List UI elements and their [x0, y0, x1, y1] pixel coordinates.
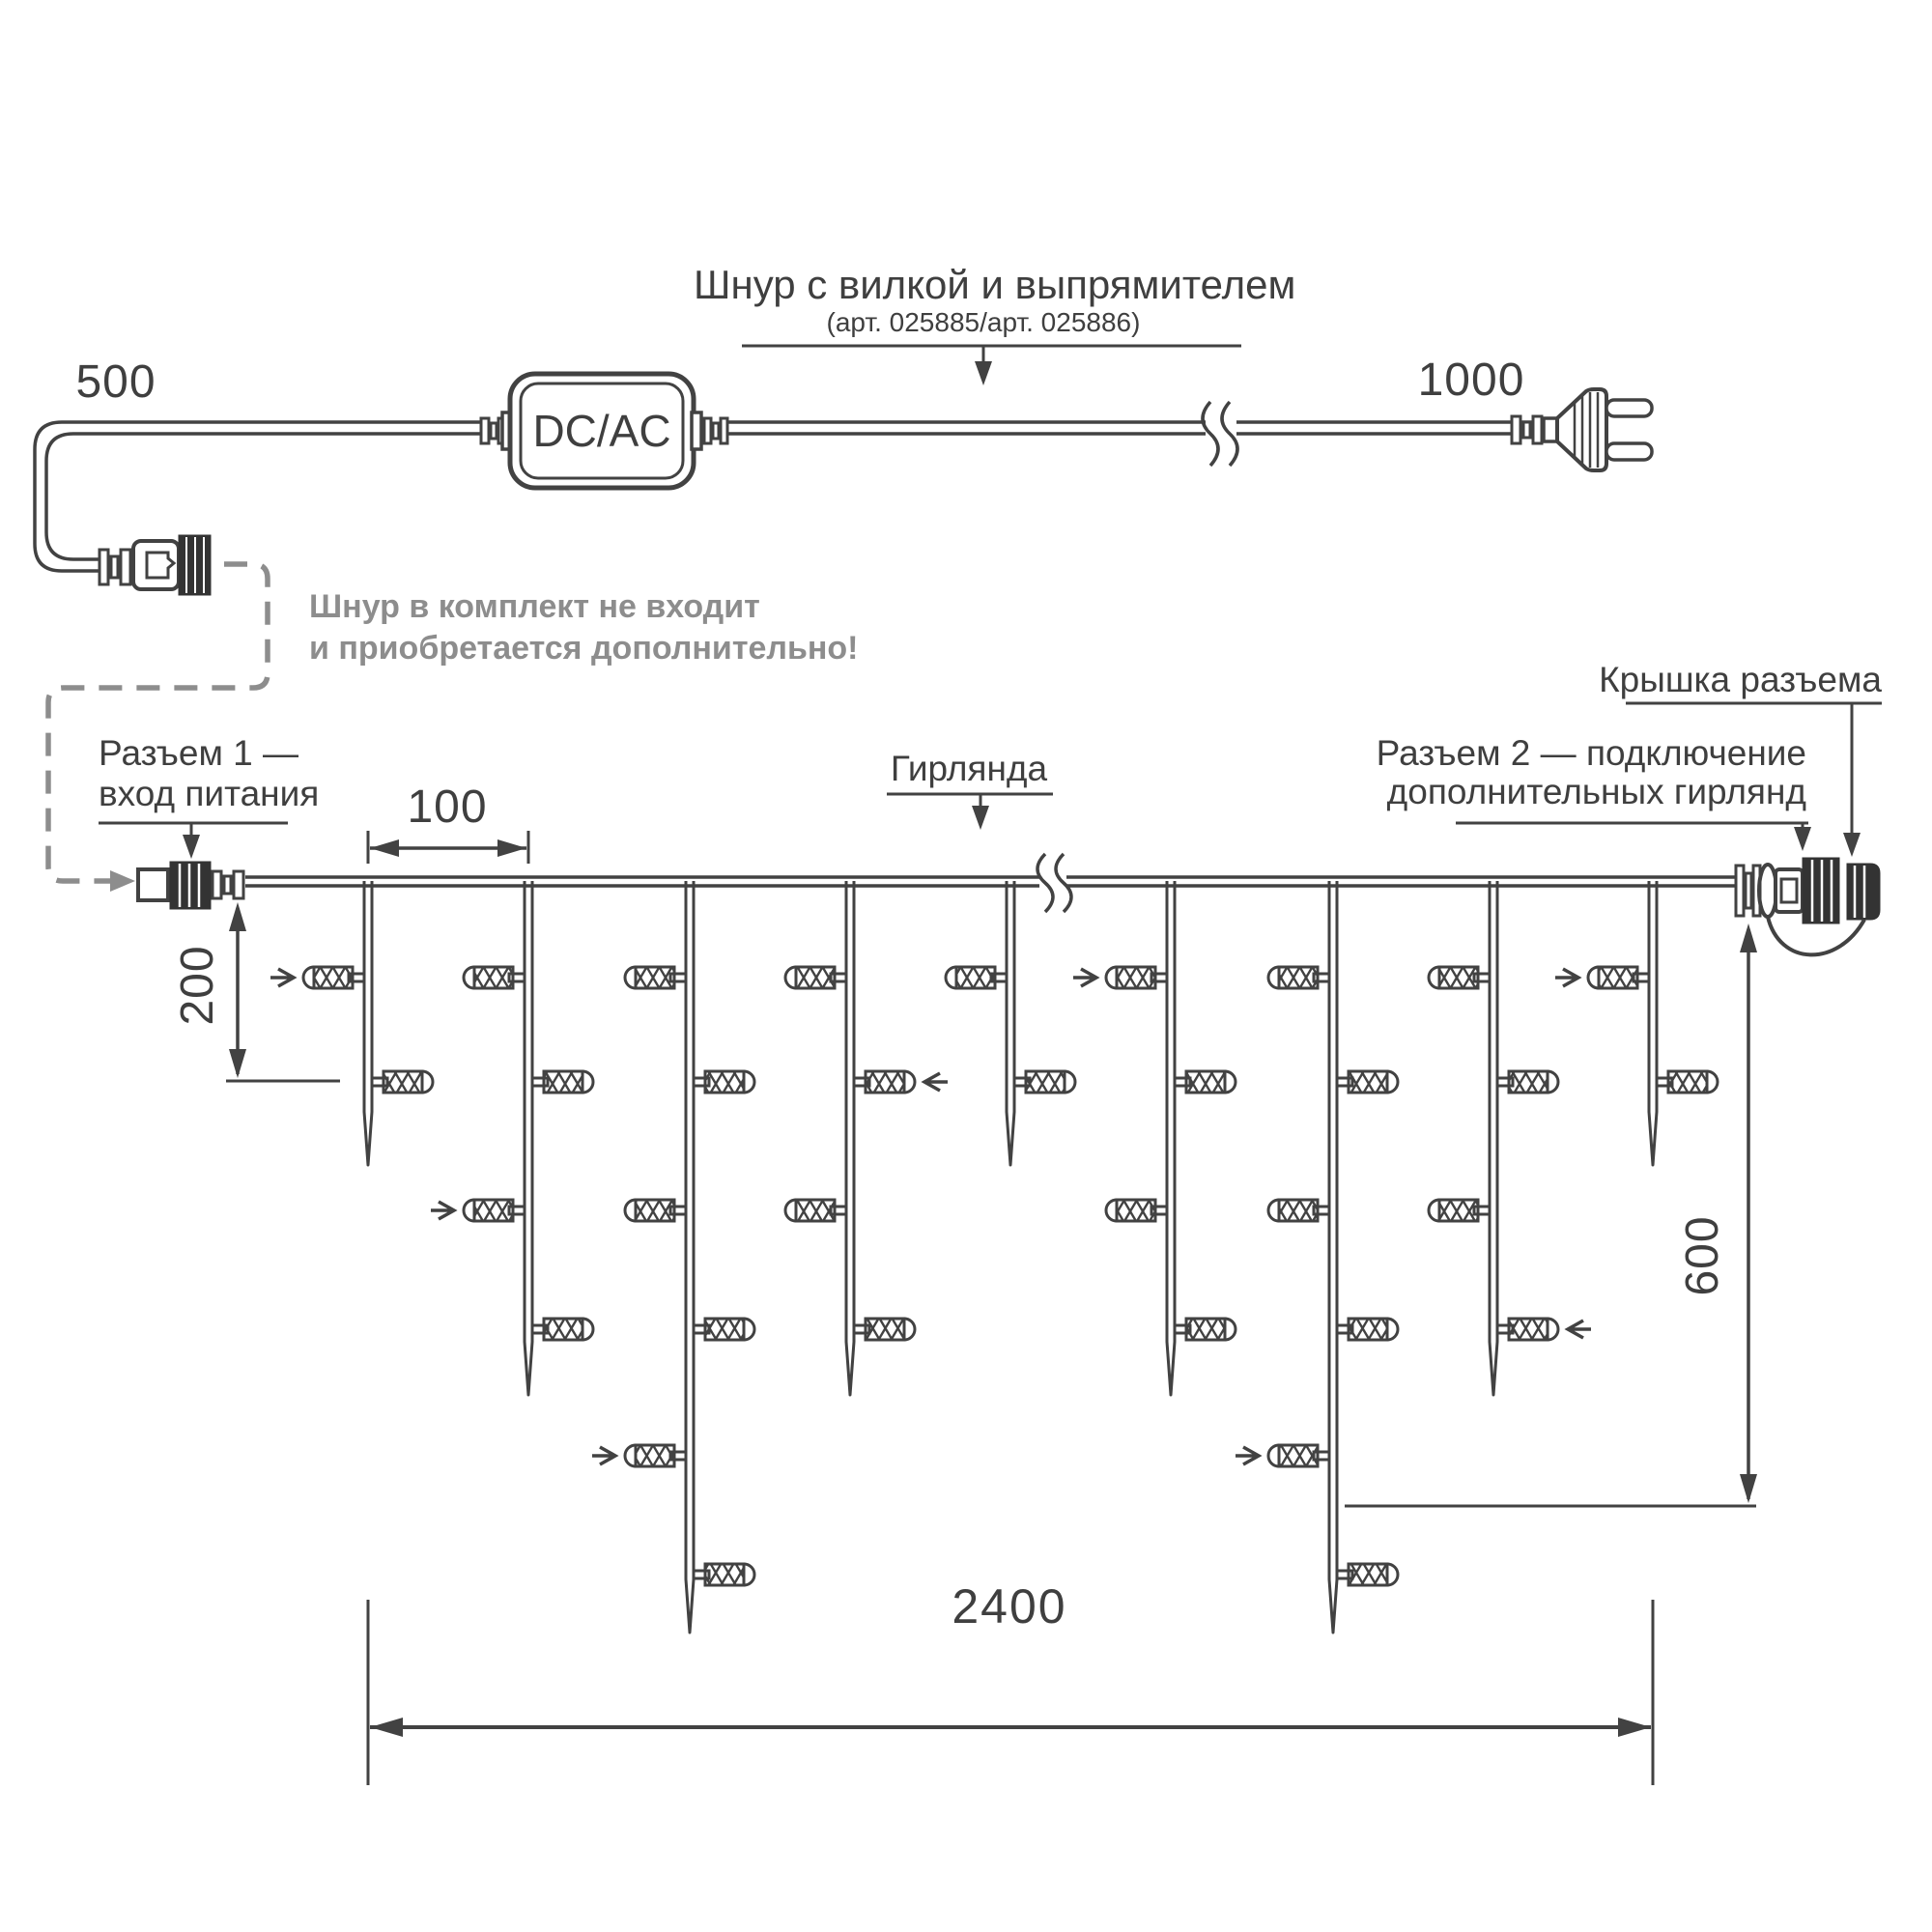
garland-drops-layer [270, 881, 1718, 1633]
dim-100-graphic [368, 831, 528, 864]
cord-connector-icon [99, 535, 211, 595]
garland-drop [1236, 881, 1398, 1633]
connector2-label-line2: дополнительных гирлянд [1323, 774, 1806, 810]
led-bulb-icon [1268, 1200, 1329, 1221]
note-line2: и приобретается дополнительно! [309, 632, 859, 665]
garland-label: Гирлянда [872, 751, 1065, 786]
dim-height-label: 600 [1680, 1179, 1726, 1333]
flash-marker-icon [1568, 1321, 1591, 1338]
diagram-subtitle: (арт. 025885/арт. 025886) [742, 309, 1225, 336]
led-bulb-icon [625, 1445, 686, 1466]
flash-marker-icon [1555, 969, 1578, 986]
flash-marker-icon [270, 969, 294, 986]
connector2-icon [1736, 858, 1880, 954]
cord-break-icon [1203, 402, 1237, 466]
led-bulb-icon [785, 967, 846, 988]
power-cord [35, 402, 1545, 571]
led-bulb-icon [1175, 1319, 1236, 1340]
dashed-connection-path [48, 564, 268, 892]
garland-drop [1073, 881, 1236, 1395]
led-bulb-icon [532, 1071, 593, 1093]
connector2-pointer [1456, 823, 1811, 851]
garland-drop [270, 881, 433, 1165]
led-bulb-icon [785, 1200, 846, 1221]
connector1-label-line1: Разъем 1 — [99, 735, 298, 771]
connector1-icon [138, 862, 243, 909]
led-bulb-icon [1268, 967, 1329, 988]
flash-marker-icon [592, 1447, 615, 1464]
dim-200-graphic [226, 902, 340, 1081]
flash-marker-icon [1073, 969, 1096, 986]
connector2-label-line1: Разъем 2 — подключение [1323, 735, 1806, 771]
led-bulb-icon [1337, 1319, 1398, 1340]
garland-drop [592, 881, 754, 1633]
led-bulb-icon [694, 1071, 754, 1093]
led-bulb-icon [625, 967, 686, 988]
led-bulb-icon [946, 967, 1007, 988]
diagram-title: Шнур с вилкой и выпрямителем [694, 265, 1273, 305]
led-bulb-icon [303, 967, 364, 988]
cap-label: Крышка разъема [1592, 662, 1882, 697]
led-bulb-icon [372, 1071, 433, 1093]
led-bulb-icon [1588, 967, 1649, 988]
title-pointer [742, 346, 1241, 385]
led-bulb-icon [694, 1319, 754, 1340]
dim-total-label: 2400 [913, 1582, 1106, 1631]
connector1-label-line2: вход питания [99, 776, 319, 811]
led-bulb-icon [854, 1319, 915, 1340]
flash-marker-icon [924, 1073, 948, 1091]
led-bulb-icon [1014, 1071, 1075, 1093]
led-bulb-icon [1497, 1071, 1558, 1093]
led-bulb-icon [694, 1564, 754, 1585]
led-bulb-icon [1337, 1564, 1398, 1585]
wire-break-icon [1037, 854, 1071, 912]
garland-pointer [887, 794, 1053, 830]
led-bulb-icon [464, 967, 525, 988]
led-bulb-icon [1175, 1071, 1236, 1093]
dim-spacing-label: 100 [380, 784, 515, 831]
garland-drop [431, 881, 593, 1395]
connector1-pointer [99, 823, 288, 859]
diagram-page: 500 1000 Шнур с вилкой и выпрямителем (а… [0, 0, 1932, 1932]
connector-cap-icon [1847, 864, 1880, 920]
led-bulb-icon [1106, 1200, 1167, 1221]
dim-cord-left-label: 500 [48, 359, 184, 406]
garland-drop [785, 881, 948, 1395]
garland-drop [1555, 881, 1718, 1165]
led-bulb-icon [464, 1200, 525, 1221]
led-bulb-icon [1106, 967, 1167, 988]
flash-marker-icon [431, 1202, 454, 1219]
led-bulb-icon [854, 1071, 915, 1093]
led-bulb-icon [1268, 1445, 1329, 1466]
led-bulb-icon [1657, 1071, 1718, 1093]
led-bulb-icon [625, 1200, 686, 1221]
garland-wire [245, 854, 1738, 912]
gray-arrowhead-icon [110, 870, 135, 892]
dim-cord-right-label: 1000 [1404, 357, 1539, 404]
garland-drop [1429, 881, 1591, 1395]
dim-first-drop-label: 200 [175, 908, 221, 1063]
led-bulb-icon [532, 1319, 593, 1340]
led-bulb-icon [1429, 967, 1490, 988]
flash-marker-icon [1236, 1447, 1259, 1464]
garland-drop [946, 881, 1075, 1165]
led-bulb-icon [1497, 1319, 1558, 1340]
note-line1: Шнур в комплект не входит [309, 590, 760, 623]
dcac-label: DC/AC [510, 409, 694, 453]
led-bulb-icon [1429, 1200, 1490, 1221]
led-bulb-icon [1337, 1071, 1398, 1093]
